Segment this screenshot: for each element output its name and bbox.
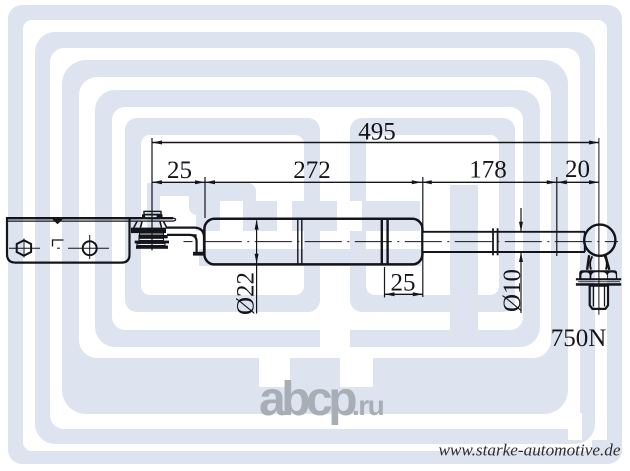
svg-text:abcp: abcp (259, 373, 356, 426)
svg-text:.ru: .ru (352, 390, 384, 421)
svg-text:www.starke-automotive.de: www.starke-automotive.de (438, 441, 620, 460)
